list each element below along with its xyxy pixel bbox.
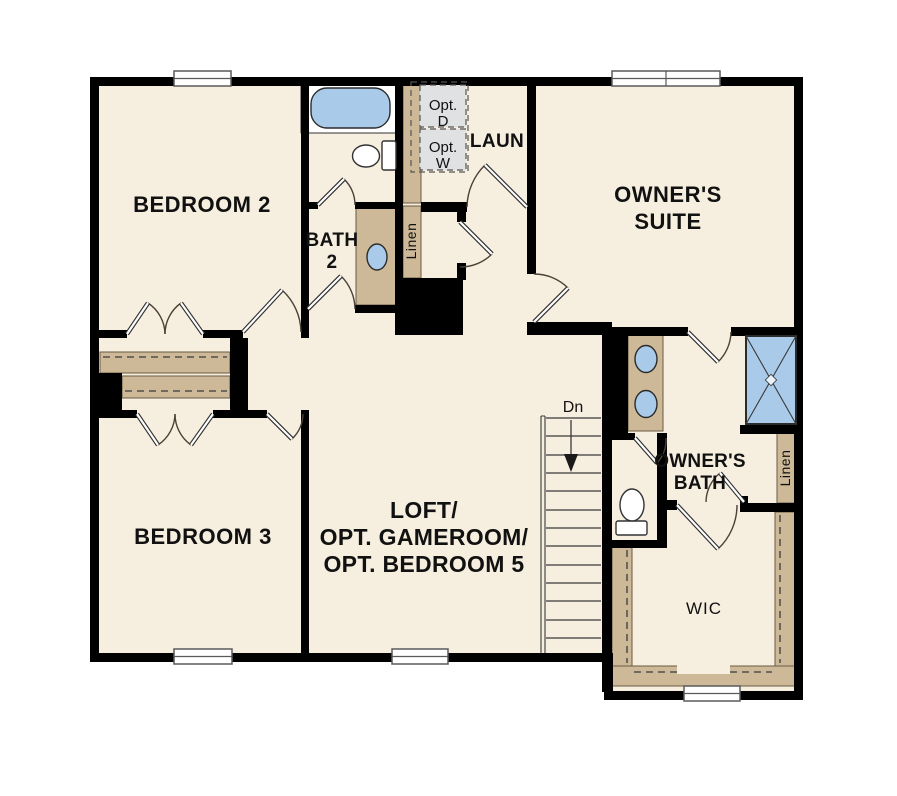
wic-shelf-gap (677, 665, 730, 674)
bedroom3-label: BEDROOM 3 (134, 524, 272, 549)
wall-shower-bottom (740, 425, 803, 434)
bedroom3-window (174, 649, 232, 664)
wic-label: WIC (686, 599, 722, 618)
wic-shelf-left (612, 547, 632, 673)
wall-bedroom3-top-b (213, 410, 267, 418)
wall-toilet-room-bottom (602, 540, 667, 548)
wall-chase-center (395, 278, 463, 335)
loft-label-line2: OPT. GAMEROOM/ (320, 524, 529, 550)
owners-suite-window (612, 71, 720, 86)
loft-window (392, 649, 448, 664)
wall-owners-bath-chase (612, 327, 628, 433)
wall-bedroom3-top-a (94, 410, 137, 418)
wall-loft-left (301, 410, 309, 657)
owners-bath-label-line1: OWNER'S (654, 451, 745, 472)
loft-label-line3: OPT. BEDROOM 5 (323, 551, 524, 577)
wall-closet-right (230, 338, 248, 418)
wall-linen-stub-bottom (457, 263, 466, 280)
wic-shelf-right (775, 512, 795, 673)
wall-owners-suite-left (527, 81, 536, 274)
opt-dryer-label-line2: D (438, 113, 449, 130)
bedroom2-closet-shelf (100, 352, 230, 373)
wall-bedroom2-right (301, 81, 309, 338)
owners-bath-label-line2: BATH (674, 473, 726, 494)
bedroom3-closet-shelf (122, 376, 230, 398)
wall-bath2-mid-a (301, 202, 318, 209)
floor-plan-page: BEDROOM 2 BATH 2 LAUN Opt. D Opt. W Line… (0, 0, 897, 796)
laundry-counter (403, 84, 421, 203)
floor-plan: BEDROOM 2 BATH 2 LAUN Opt. D Opt. W Line… (0, 0, 897, 796)
bath2-label-line1: BATH (306, 230, 359, 251)
bath2-sink (367, 244, 387, 270)
bedroom2-label: BEDROOM 2 (133, 192, 271, 217)
wall-bath-wic (664, 500, 677, 510)
bath2-label-line2: 2 (327, 252, 338, 273)
wall-bedroom2-bottom-a (94, 330, 127, 338)
wall-bedroom2-bottom-b (203, 330, 243, 338)
wall-linen-owners-bottom (740, 503, 795, 512)
wall-bath2-bottom (355, 305, 395, 313)
wall-toilet-room-top (612, 433, 635, 440)
outer-wall-left (90, 77, 99, 662)
hall-linen-label: Linen (403, 223, 419, 260)
opt-washer-label-line2: W (436, 155, 451, 172)
laundry-label: LAUN (470, 131, 524, 152)
shower (746, 336, 796, 424)
opt-dryer-label-line1: Opt. (429, 97, 457, 114)
wic-window (684, 686, 740, 701)
owners-vanity-sink-2 (635, 391, 657, 418)
wall-owners-suite-bottom-b (731, 327, 794, 336)
opt-washer-label-line1: Opt. (429, 139, 457, 156)
closet-dead-space (94, 373, 122, 413)
wall-hall-top (527, 322, 612, 335)
loft-label-line1: LOFT/ (390, 497, 458, 523)
owners-linen-label: Linen (777, 450, 793, 487)
owners-suite-label-line2: SUITE (634, 209, 701, 234)
wall-stairs-right (602, 335, 612, 692)
bedroom2-window (174, 71, 231, 86)
stairs-dn-label: Dn (563, 399, 583, 416)
owners-vanity-sink-1 (635, 346, 657, 373)
outer-wall-bottom-main (90, 653, 613, 662)
bathtub (311, 88, 390, 128)
owners-suite-label-line1: OWNER'S (614, 182, 722, 207)
wall-linen-stub-top (457, 208, 466, 222)
